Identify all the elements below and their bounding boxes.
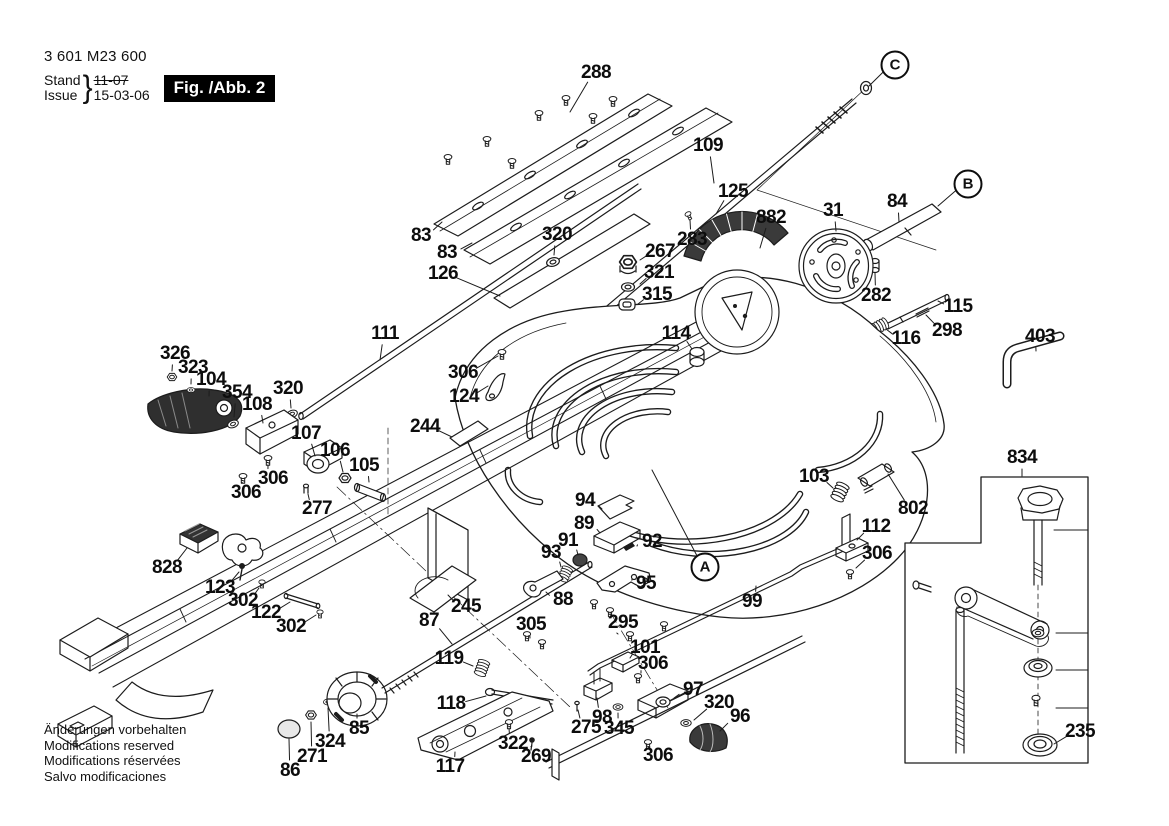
ref-marker-C: C (881, 51, 910, 80)
part-label-119: 119 (435, 648, 464, 670)
part-label-305: 305 (516, 614, 546, 636)
part-label-87: 87 (419, 610, 439, 632)
part-label-116: 116 (892, 328, 921, 350)
part-label-245: 245 (451, 596, 481, 618)
part-label-882: 882 (756, 207, 786, 229)
modification-notes: Änderungen vorbehaltenModifications rese… (44, 722, 186, 784)
part-label-124: 124 (449, 386, 479, 408)
part-label-106: 106 (320, 440, 350, 462)
part-label-345: 345 (604, 718, 634, 740)
footnote-line: Modifications réservées (44, 753, 186, 769)
part-label-306: 306 (638, 653, 668, 675)
ref-marker-B: B (954, 170, 983, 199)
part-label-94: 94 (575, 490, 595, 512)
part-label-97: 97 (683, 679, 703, 701)
part-label-306: 306 (862, 543, 892, 565)
part-label-306: 306 (258, 468, 288, 490)
part-label-96: 96 (730, 706, 750, 728)
part-label-107: 107 (291, 423, 321, 445)
part-label-115: 115 (944, 296, 973, 318)
part-label-271: 271 (297, 746, 327, 768)
part-label-93: 93 (541, 542, 561, 564)
part-label-109: 109 (693, 135, 723, 157)
part-label-282: 282 (861, 285, 891, 307)
figure-label: Fig. /Abb. 2 (164, 75, 276, 102)
stand-label: Stand (44, 73, 81, 88)
part-label-275: 275 (571, 717, 601, 739)
part-label-88: 88 (553, 589, 573, 611)
part-label-267: 267 (645, 241, 675, 263)
part-label-108: 108 (242, 394, 272, 416)
part-label-85: 85 (349, 718, 369, 740)
footnote-line: Änderungen vorbehalten (44, 722, 186, 738)
part-label-269: 269 (521, 746, 551, 768)
issue-date: 15-03-06 (94, 88, 150, 103)
part-label-84: 84 (887, 191, 907, 213)
part-label-99: 99 (742, 591, 762, 613)
superseded-date: 11-07 (94, 73, 150, 88)
part-label-112: 112 (862, 516, 891, 538)
part-label-103: 103 (799, 466, 829, 488)
issue-label: Issue (44, 88, 81, 103)
part-label-83: 83 (411, 225, 431, 247)
part-label-235: 235 (1065, 721, 1095, 743)
brace-glyph: } (83, 70, 93, 106)
part-label-114: 114 (662, 323, 691, 345)
part-label-320: 320 (542, 224, 572, 246)
part-label-320: 320 (273, 378, 303, 400)
part-label-31: 31 (823, 200, 843, 222)
part-label-288: 288 (581, 62, 611, 84)
parts-diagram-page: 3 601 M23 600 Stand Issue } 11-07 15-03-… (0, 0, 1169, 826)
part-label-105: 105 (349, 455, 379, 477)
part-label-302: 302 (276, 616, 306, 638)
part-label-306: 306 (231, 482, 261, 504)
fence-plates (434, 94, 732, 308)
part-label-244: 244 (410, 416, 440, 438)
inset-detail-box (905, 477, 1088, 763)
title-block: 3 601 M23 600 Stand Issue } 11-07 15-03-… (44, 48, 275, 105)
ref-marker-A: A (691, 553, 720, 582)
diagram-art (0, 0, 1169, 826)
part-label-306: 306 (448, 362, 478, 384)
part-label-125: 125 (718, 181, 748, 203)
part-label-403: 403 (1025, 326, 1055, 348)
part-label-92: 92 (642, 531, 662, 553)
part-label-86: 86 (280, 760, 300, 782)
part-label-321: 321 (644, 262, 674, 284)
part-label-298: 298 (932, 320, 962, 342)
part-label-283: 283 (677, 229, 707, 251)
part-label-83: 83 (437, 242, 457, 264)
part-label-802: 802 (898, 498, 928, 520)
part-label-95: 95 (636, 573, 656, 595)
part-label-118: 118 (437, 693, 466, 715)
part-label-315: 315 (642, 284, 672, 306)
footnote-line: Modifications reserved (44, 738, 186, 754)
part-label-117: 117 (436, 756, 465, 778)
turntable-base (58, 277, 944, 747)
part-label-828: 828 (152, 557, 182, 579)
part-label-834: 834 (1007, 447, 1037, 469)
part-label-126: 126 (428, 263, 458, 285)
part-label-111: 111 (371, 323, 399, 345)
footnote-line: Salvo modificaciones (44, 769, 186, 785)
part-label-306: 306 (643, 745, 673, 767)
part-number: 3 601 M23 600 (44, 48, 275, 65)
part-label-277: 277 (302, 498, 332, 520)
part-label-295: 295 (608, 612, 638, 634)
